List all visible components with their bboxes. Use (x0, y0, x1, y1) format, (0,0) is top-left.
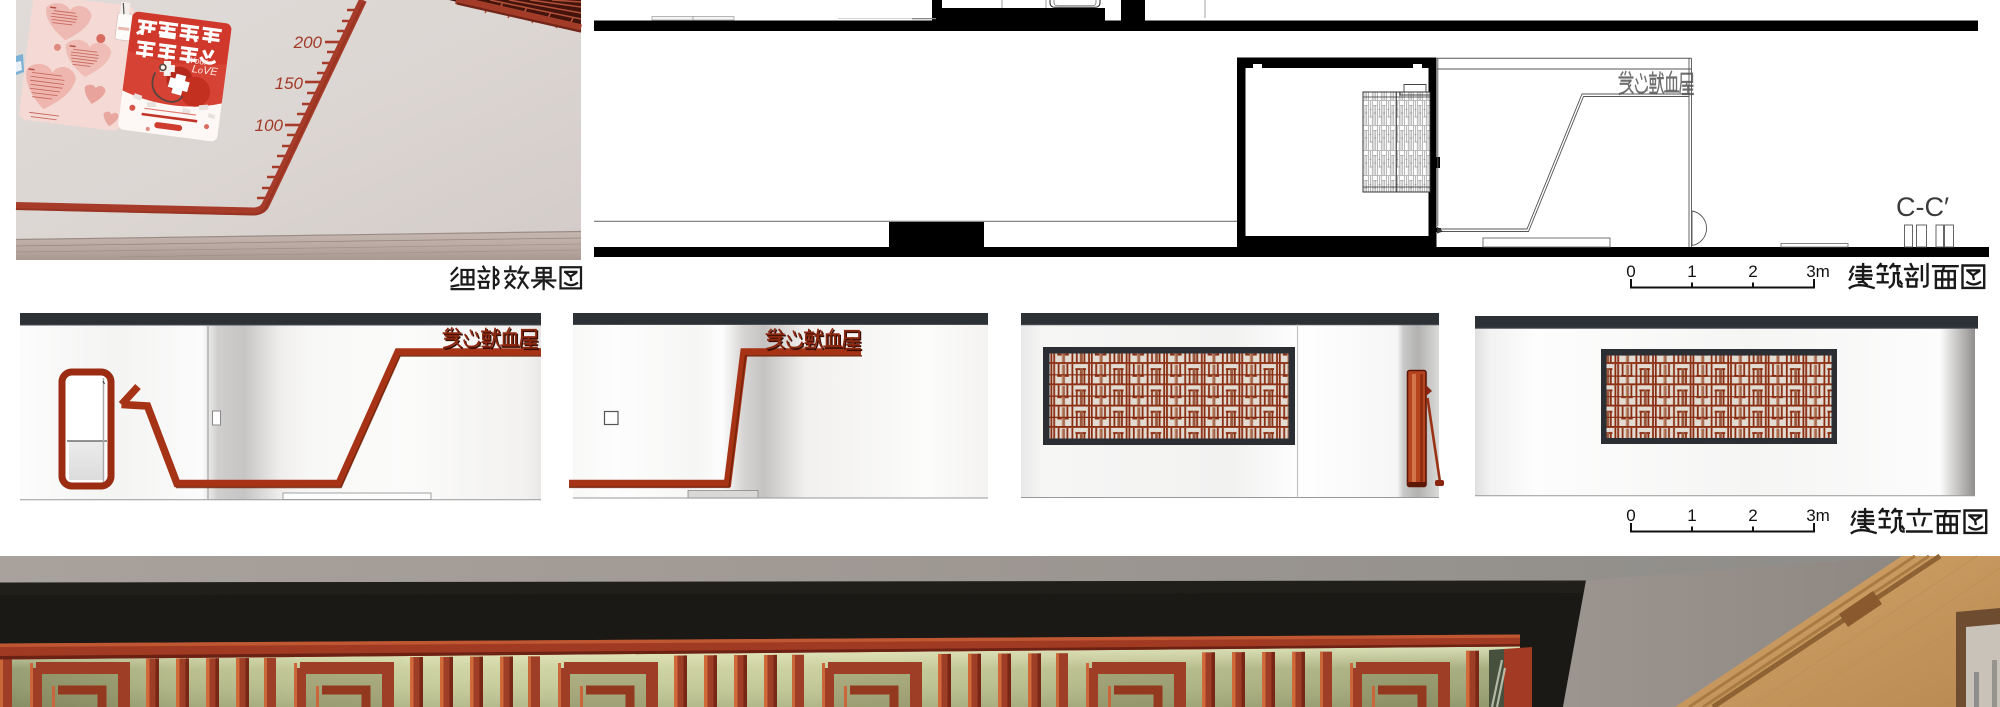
svg-text:C-C′: C-C′ (1896, 192, 1949, 222)
svg-text:1: 1 (1687, 506, 1696, 525)
svg-text:150: 150 (275, 74, 304, 93)
svg-text:1: 1 (1687, 262, 1696, 281)
svg-text:2: 2 (1748, 262, 1757, 281)
svg-text:2: 2 (1748, 506, 1757, 525)
svg-text:0: 0 (1626, 262, 1635, 281)
svg-text:3m: 3m (1806, 506, 1830, 525)
svg-text:200: 200 (293, 33, 323, 52)
svg-text:3m: 3m (1806, 262, 1830, 281)
svg-text:100: 100 (255, 116, 284, 135)
svg-text:0: 0 (1626, 506, 1635, 525)
